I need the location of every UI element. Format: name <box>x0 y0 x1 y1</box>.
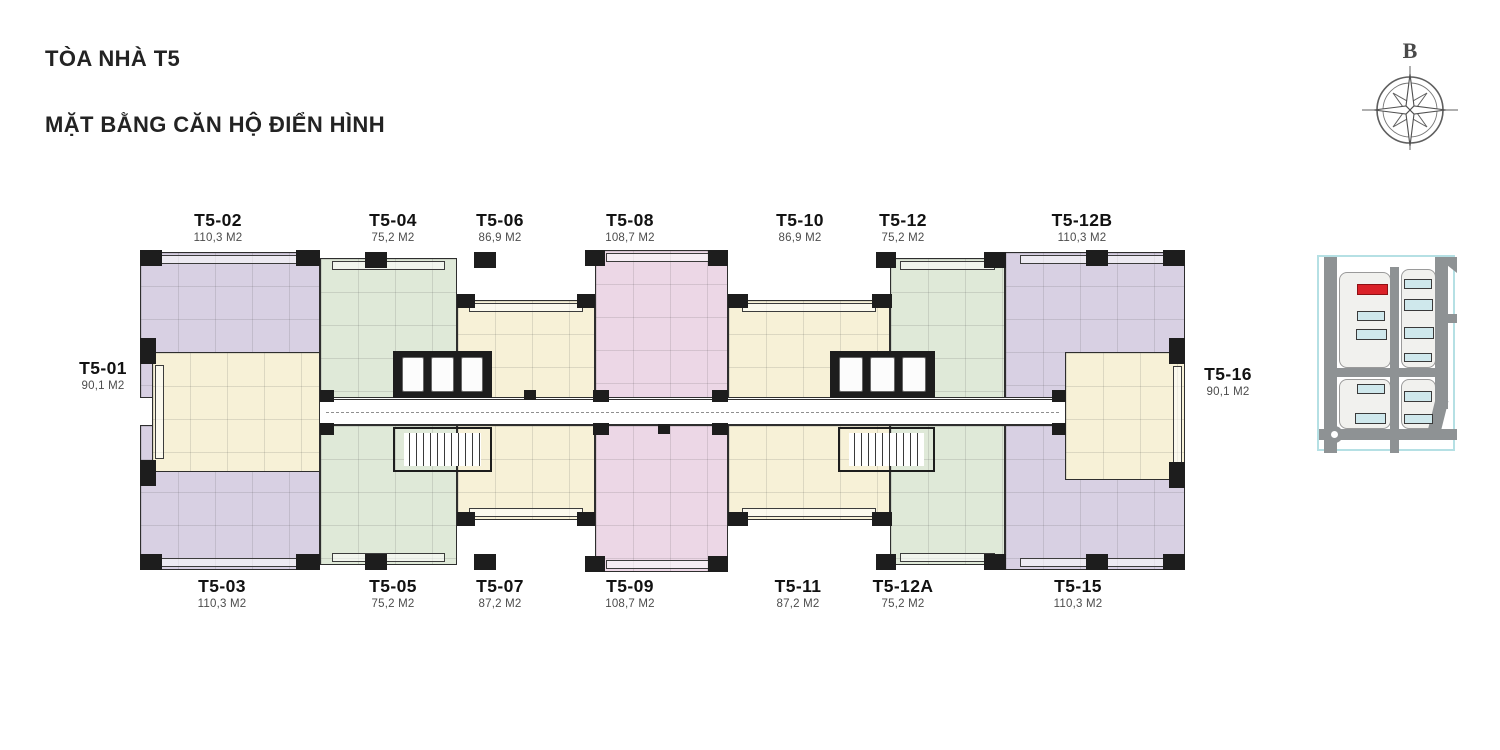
unit-label-T5-01: T5-0190,1 M2 <box>33 358 173 392</box>
map-building <box>1355 413 1386 424</box>
map-road <box>1435 257 1448 409</box>
map-road <box>1435 314 1457 323</box>
unit-name-T5-02: T5-02 <box>148 210 288 231</box>
unit-name-T5-08: T5-08 <box>560 210 700 231</box>
unit-label-T5-06: T5-0686,9 M2 <box>430 210 570 244</box>
map-building <box>1404 353 1432 362</box>
structural-column <box>577 294 595 308</box>
unit-name-T5-06: T5-06 <box>430 210 570 231</box>
unit-label-T5-08: T5-08108,7 M2 <box>560 210 700 244</box>
stair-core-2 <box>838 427 935 472</box>
elevator-car <box>431 357 453 392</box>
unit-area-T5-03: 110,3 M2 <box>152 598 292 610</box>
unit-area-T5-12: 75,2 M2 <box>833 232 973 244</box>
unit-name-T5-15: T5-15 <box>1008 576 1148 597</box>
structural-column <box>1169 338 1185 364</box>
unit-label-T5-12B: T5-12B110,3 M2 <box>1012 210 1152 244</box>
unit-label-T5-12A: T5-12A75,2 M2 <box>833 576 973 610</box>
unit-label-T5-12: T5-1275,2 M2 <box>833 210 973 244</box>
structural-column <box>320 390 334 402</box>
floor-plan: T5-02110,3 M2T5-03110,3 M2T5-0475,2 M2T5… <box>0 0 1500 750</box>
structural-column <box>593 423 609 435</box>
structural-column <box>728 294 748 308</box>
map-building <box>1357 384 1385 394</box>
elevator-bank-1 <box>393 351 492 398</box>
structural-column <box>593 390 609 402</box>
unit-name-T5-09: T5-09 <box>560 576 700 597</box>
structural-column <box>585 250 605 266</box>
structural-column <box>1052 423 1066 435</box>
structural-column <box>1163 250 1185 266</box>
structural-column <box>1086 554 1108 570</box>
structural-column <box>140 460 156 486</box>
structural-column <box>872 294 892 308</box>
unit-label-T5-02: T5-02110,3 M2 <box>148 210 288 244</box>
structural-column <box>457 512 475 526</box>
structural-column <box>140 554 162 570</box>
unit-T5-01 <box>152 352 320 472</box>
structural-column <box>1086 250 1108 266</box>
map-building <box>1404 391 1432 402</box>
structural-column <box>1169 462 1185 488</box>
structural-column <box>320 423 334 435</box>
unit-name-T5-12: T5-12 <box>833 210 973 231</box>
structural-column <box>984 252 1006 268</box>
map-building <box>1404 299 1433 311</box>
structural-column <box>457 294 475 308</box>
elevator-car <box>461 357 483 392</box>
unit-name-T5-12A: T5-12A <box>833 576 973 597</box>
elevator-car <box>870 357 894 392</box>
elevator-car <box>902 357 926 392</box>
unit-name-T5-03: T5-03 <box>152 576 292 597</box>
structural-column <box>712 390 728 402</box>
unit-area-T5-02: 110,3 M2 <box>148 232 288 244</box>
unit-area-T5-08: 108,7 M2 <box>560 232 700 244</box>
map-building-t5-highlight <box>1357 284 1388 295</box>
structural-column <box>365 252 387 268</box>
unit-area-T5-01: 90,1 M2 <box>33 380 173 392</box>
map-road <box>1324 257 1337 453</box>
unit-area-T5-06: 86,9 M2 <box>430 232 570 244</box>
unit-name-T5-01: T5-01 <box>33 358 173 379</box>
map-road <box>1324 368 1448 377</box>
structural-column <box>585 556 605 572</box>
structural-column <box>474 252 496 268</box>
structural-column <box>296 554 320 570</box>
unit-area-T5-15: 110,3 M2 <box>1008 598 1148 610</box>
elevator-bank-2 <box>830 351 935 398</box>
unit-area-T5-12B: 110,3 M2 <box>1012 232 1152 244</box>
unit-area-T5-09: 108,7 M2 <box>560 598 700 610</box>
structural-column <box>1163 554 1185 570</box>
unit-label-T5-16: T5-1690,1 M2 <box>1158 364 1298 398</box>
map-road <box>1390 267 1399 453</box>
map-building <box>1357 311 1385 321</box>
structural-column <box>365 554 387 570</box>
structural-column <box>984 554 1006 570</box>
structural-column <box>876 554 896 570</box>
structural-column <box>296 250 320 266</box>
unit-name-T5-07: T5-07 <box>430 576 570 597</box>
page: TÒA NHÀ T5 MẶT BẰNG CĂN HỘ ĐIỂN HÌNH B T… <box>0 0 1500 750</box>
map-building <box>1404 327 1434 339</box>
structural-column <box>658 424 670 434</box>
unit-name-T5-16: T5-16 <box>1158 364 1298 385</box>
structural-column <box>712 423 728 435</box>
elevator-car <box>839 357 863 392</box>
structural-column <box>872 512 892 526</box>
structural-column <box>1052 390 1066 402</box>
unit-name-T5-12B: T5-12B <box>1012 210 1152 231</box>
structural-column <box>728 512 748 526</box>
map-building <box>1404 414 1433 424</box>
structural-column <box>577 512 595 526</box>
location-map <box>1317 255 1455 451</box>
map-building <box>1356 329 1387 340</box>
unit-label-T5-07: T5-0787,2 M2 <box>430 576 570 610</box>
structural-column <box>140 250 162 266</box>
structural-column <box>474 554 496 570</box>
map-roundabout <box>1326 426 1343 443</box>
central-corridor <box>320 399 1065 425</box>
elevator-car <box>402 357 424 392</box>
unit-area-T5-16: 90,1 M2 <box>1158 386 1298 398</box>
map-building <box>1404 279 1432 289</box>
structural-column <box>708 556 728 572</box>
unit-area-T5-12A: 75,2 M2 <box>833 598 973 610</box>
unit-T5-09 <box>595 425 728 572</box>
unit-label-T5-15: T5-15110,3 M2 <box>1008 576 1148 610</box>
unit-label-T5-09: T5-09108,7 M2 <box>560 576 700 610</box>
unit-T5-08 <box>595 250 728 398</box>
structural-column <box>708 250 728 266</box>
unit-label-T5-03: T5-03110,3 M2 <box>152 576 292 610</box>
structural-column <box>524 390 536 400</box>
unit-area-T5-07: 87,2 M2 <box>430 598 570 610</box>
stair-core-1 <box>393 427 492 472</box>
structural-column <box>876 252 896 268</box>
